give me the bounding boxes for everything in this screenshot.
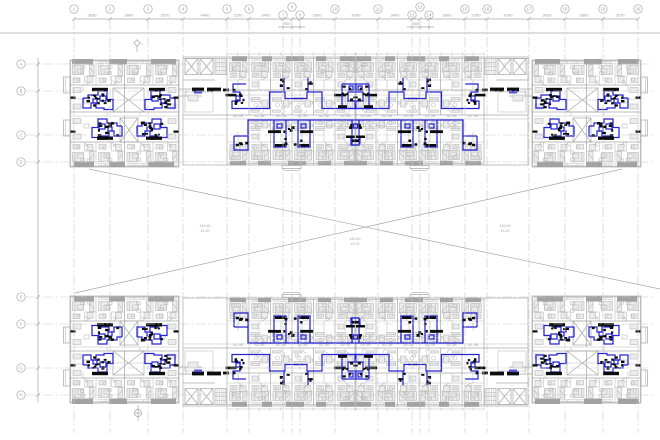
- svg-text:A2-3B: A2-3B: [341, 114, 352, 118]
- svg-text:5: 5: [226, 6, 229, 11]
- svg-text:2200: 2200: [234, 13, 244, 18]
- svg-text:3: 3: [147, 6, 150, 11]
- svg-text:14: 14: [427, 12, 432, 17]
- svg-text:1: 1: [141, 42, 143, 46]
- svg-text:4200: 4200: [504, 13, 514, 18]
- svg-text:E: E: [20, 294, 23, 299]
- svg-text:B: B: [20, 88, 23, 93]
- svg-text:18: 18: [563, 6, 568, 11]
- svg-text:3800: 3800: [580, 13, 590, 18]
- svg-text:1: 1: [73, 6, 76, 11]
- svg-text:A2-3B: A2-3B: [276, 114, 287, 118]
- svg-text:20: 20: [636, 6, 641, 11]
- svg-text:7: 7: [282, 12, 285, 17]
- svg-text:4400: 4400: [201, 13, 211, 18]
- svg-text:900: 900: [413, 21, 420, 26]
- svg-text:3570: 3570: [616, 13, 626, 18]
- svg-text:445.60: 445.60: [200, 224, 211, 228]
- svg-text:A2-3B: A2-3B: [425, 114, 436, 118]
- svg-text:A2-3B: A2-3B: [233, 343, 244, 347]
- svg-text:A2-3B: A2-3B: [468, 343, 479, 347]
- svg-text:D: D: [19, 159, 22, 164]
- svg-text:2: 2: [109, 6, 112, 11]
- svg-text:A2-3B: A2-3B: [255, 114, 266, 118]
- svg-text:A2-3B: A2-3B: [468, 114, 479, 118]
- svg-text:3570: 3570: [161, 13, 171, 18]
- svg-text:445.60: 445.60: [500, 224, 511, 228]
- svg-text:8: 8: [291, 4, 294, 9]
- svg-text:11: 11: [376, 6, 381, 11]
- svg-text:3630: 3630: [88, 13, 98, 18]
- svg-text:A2-3B: A2-3B: [298, 114, 309, 118]
- svg-text:43.20: 43.20: [201, 229, 210, 233]
- svg-text:3800: 3800: [125, 13, 135, 18]
- svg-text:A2-3B: A2-3B: [404, 114, 415, 118]
- svg-text:A2-3B: A2-3B: [447, 114, 458, 118]
- svg-text:12: 12: [410, 12, 415, 17]
- svg-text:3400: 3400: [391, 13, 401, 18]
- svg-text:3600: 3600: [443, 13, 453, 18]
- svg-text:H: H: [19, 392, 22, 397]
- svg-text:A2-3B: A2-3B: [361, 114, 372, 118]
- svg-text:A2-3B: A2-3B: [382, 114, 393, 118]
- svg-text:G: G: [19, 365, 22, 370]
- svg-text:A: A: [20, 61, 23, 66]
- svg-text:6: 6: [248, 6, 251, 11]
- svg-text:F: F: [20, 321, 23, 326]
- svg-text:43.20: 43.20: [351, 242, 360, 246]
- svg-text:2200: 2200: [472, 13, 482, 18]
- svg-text:900: 900: [284, 21, 291, 26]
- svg-text:445.60: 445.60: [350, 237, 361, 241]
- svg-text:10: 10: [333, 6, 338, 11]
- svg-text:4: 4: [182, 6, 185, 11]
- svg-text:3400: 3400: [262, 13, 272, 18]
- svg-text:4300: 4300: [352, 13, 362, 18]
- svg-text:3500: 3500: [313, 13, 323, 18]
- svg-text:13: 13: [418, 4, 423, 9]
- svg-text:15: 15: [463, 6, 468, 11]
- svg-text:A2-3B: A2-3B: [233, 114, 244, 118]
- svg-text:9: 9: [299, 12, 302, 17]
- svg-text:C: C: [19, 132, 22, 137]
- svg-text:17: 17: [527, 6, 532, 11]
- svg-text:A2-3B: A2-3B: [319, 114, 330, 118]
- svg-text:19: 19: [601, 6, 606, 11]
- svg-text:3630: 3630: [543, 13, 553, 18]
- svg-text:16: 16: [485, 6, 490, 11]
- svg-text:43.20: 43.20: [501, 229, 510, 233]
